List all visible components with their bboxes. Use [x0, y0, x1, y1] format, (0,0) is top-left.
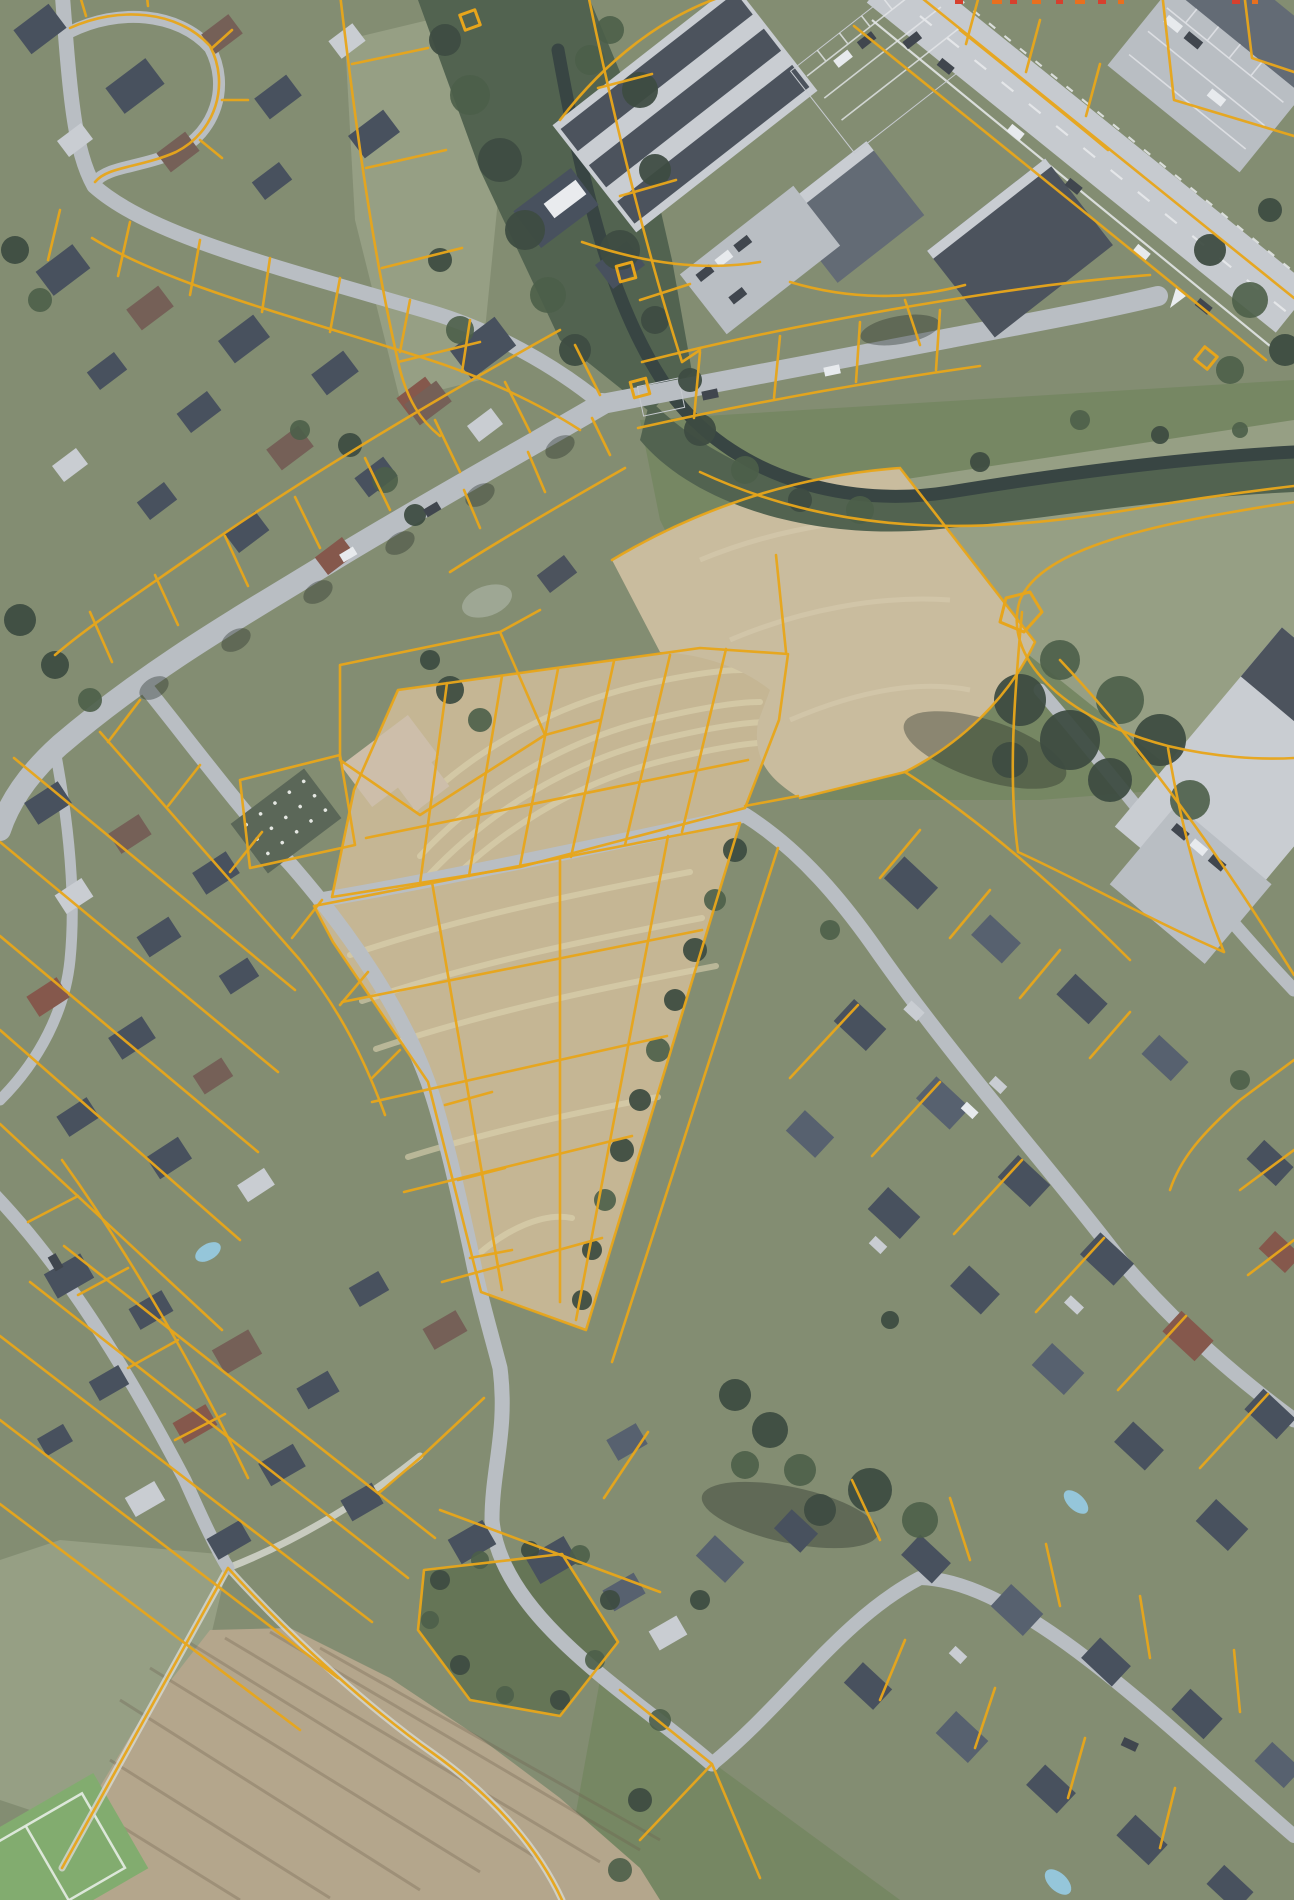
aerial-map-canvas[interactable] — [0, 0, 1294, 1900]
map-viewport[interactable] — [0, 0, 1294, 1900]
